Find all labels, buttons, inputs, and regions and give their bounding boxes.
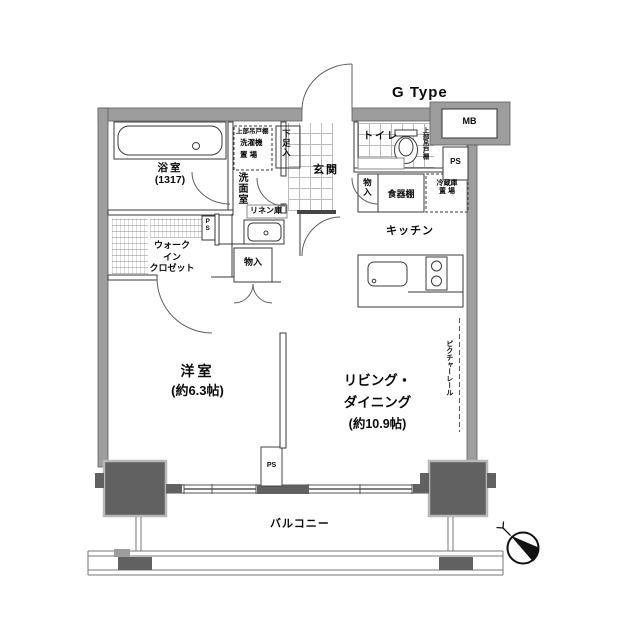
kitchen-counter <box>358 255 463 307</box>
bedroom-closet-label: 物入 <box>234 258 272 268</box>
ps-bottom-label: PS <box>261 462 282 470</box>
bathroom-name: 浴室 <box>158 162 183 174</box>
floor-plan: G Type MB PS 浴室 (1317) 上部吊戸棚 洗濯機 置 場 下足入… <box>0 0 640 640</box>
living-size: (約10.9帖) <box>349 417 407 431</box>
toilet-label: トイレ <box>363 131 399 142</box>
picture-rail-label: ピクチャーレール <box>445 340 453 412</box>
washbasin <box>244 220 284 244</box>
dish-shelf-label: 食器棚 <box>378 190 424 200</box>
washer-place-label: 置 場 <box>240 151 257 159</box>
plan-linework <box>0 0 640 640</box>
linen-storage-label: リネン庫 <box>250 207 282 216</box>
fridge-line2: 置 場 <box>439 188 455 195</box>
bathroom-label: 浴室 (1317) <box>128 163 212 186</box>
wic-line2: イン <box>163 252 181 262</box>
washer-upper-shelf-label: 上部吊戸棚 <box>236 128 269 168</box>
living-line1: リビング・ <box>344 373 412 388</box>
wic-line3: クロゼット <box>149 263 194 273</box>
western-room-label: 洋室 (約6.3帖) <box>140 362 255 400</box>
fridge-label: 冷蔵庫 置 場 <box>426 180 468 195</box>
western-room-size: (約6.3帖) <box>171 383 224 398</box>
type-label: G Type <box>392 85 448 102</box>
washer-label: 洗濯機 <box>240 139 263 147</box>
ps-closet-label: PS <box>204 218 211 239</box>
meter-box-label: MB <box>442 117 497 127</box>
wic-line1: ウォーク <box>154 240 190 250</box>
bathroom-size: (1317) <box>155 174 185 186</box>
door-arcs <box>157 64 378 333</box>
toilet-upper-shelf-label: 上部吊戸棚 <box>421 127 428 169</box>
living-dining-label: リビング・ ダイニング (約10.9帖) <box>310 370 445 435</box>
shoe-cabinet-label: 下足入 <box>281 129 290 169</box>
washroom-label: 洗面室 <box>236 172 247 234</box>
western-room-name: 洋室 <box>181 363 215 379</box>
kitchen-label: キッチン <box>386 225 434 237</box>
fridge-line1: 冷蔵庫 <box>437 180 458 187</box>
hall-closet-label: 物入 <box>362 178 371 210</box>
ps-top-label: PS <box>443 158 468 167</box>
balcony-label: バルコニー <box>270 518 330 530</box>
living-line2: ダイニング <box>344 395 412 410</box>
wic-label: ウォーク イン クロゼット <box>120 240 224 275</box>
balcony-windows <box>166 484 429 494</box>
entrance-label: 玄関 <box>313 164 339 176</box>
bathtub <box>114 122 226 159</box>
